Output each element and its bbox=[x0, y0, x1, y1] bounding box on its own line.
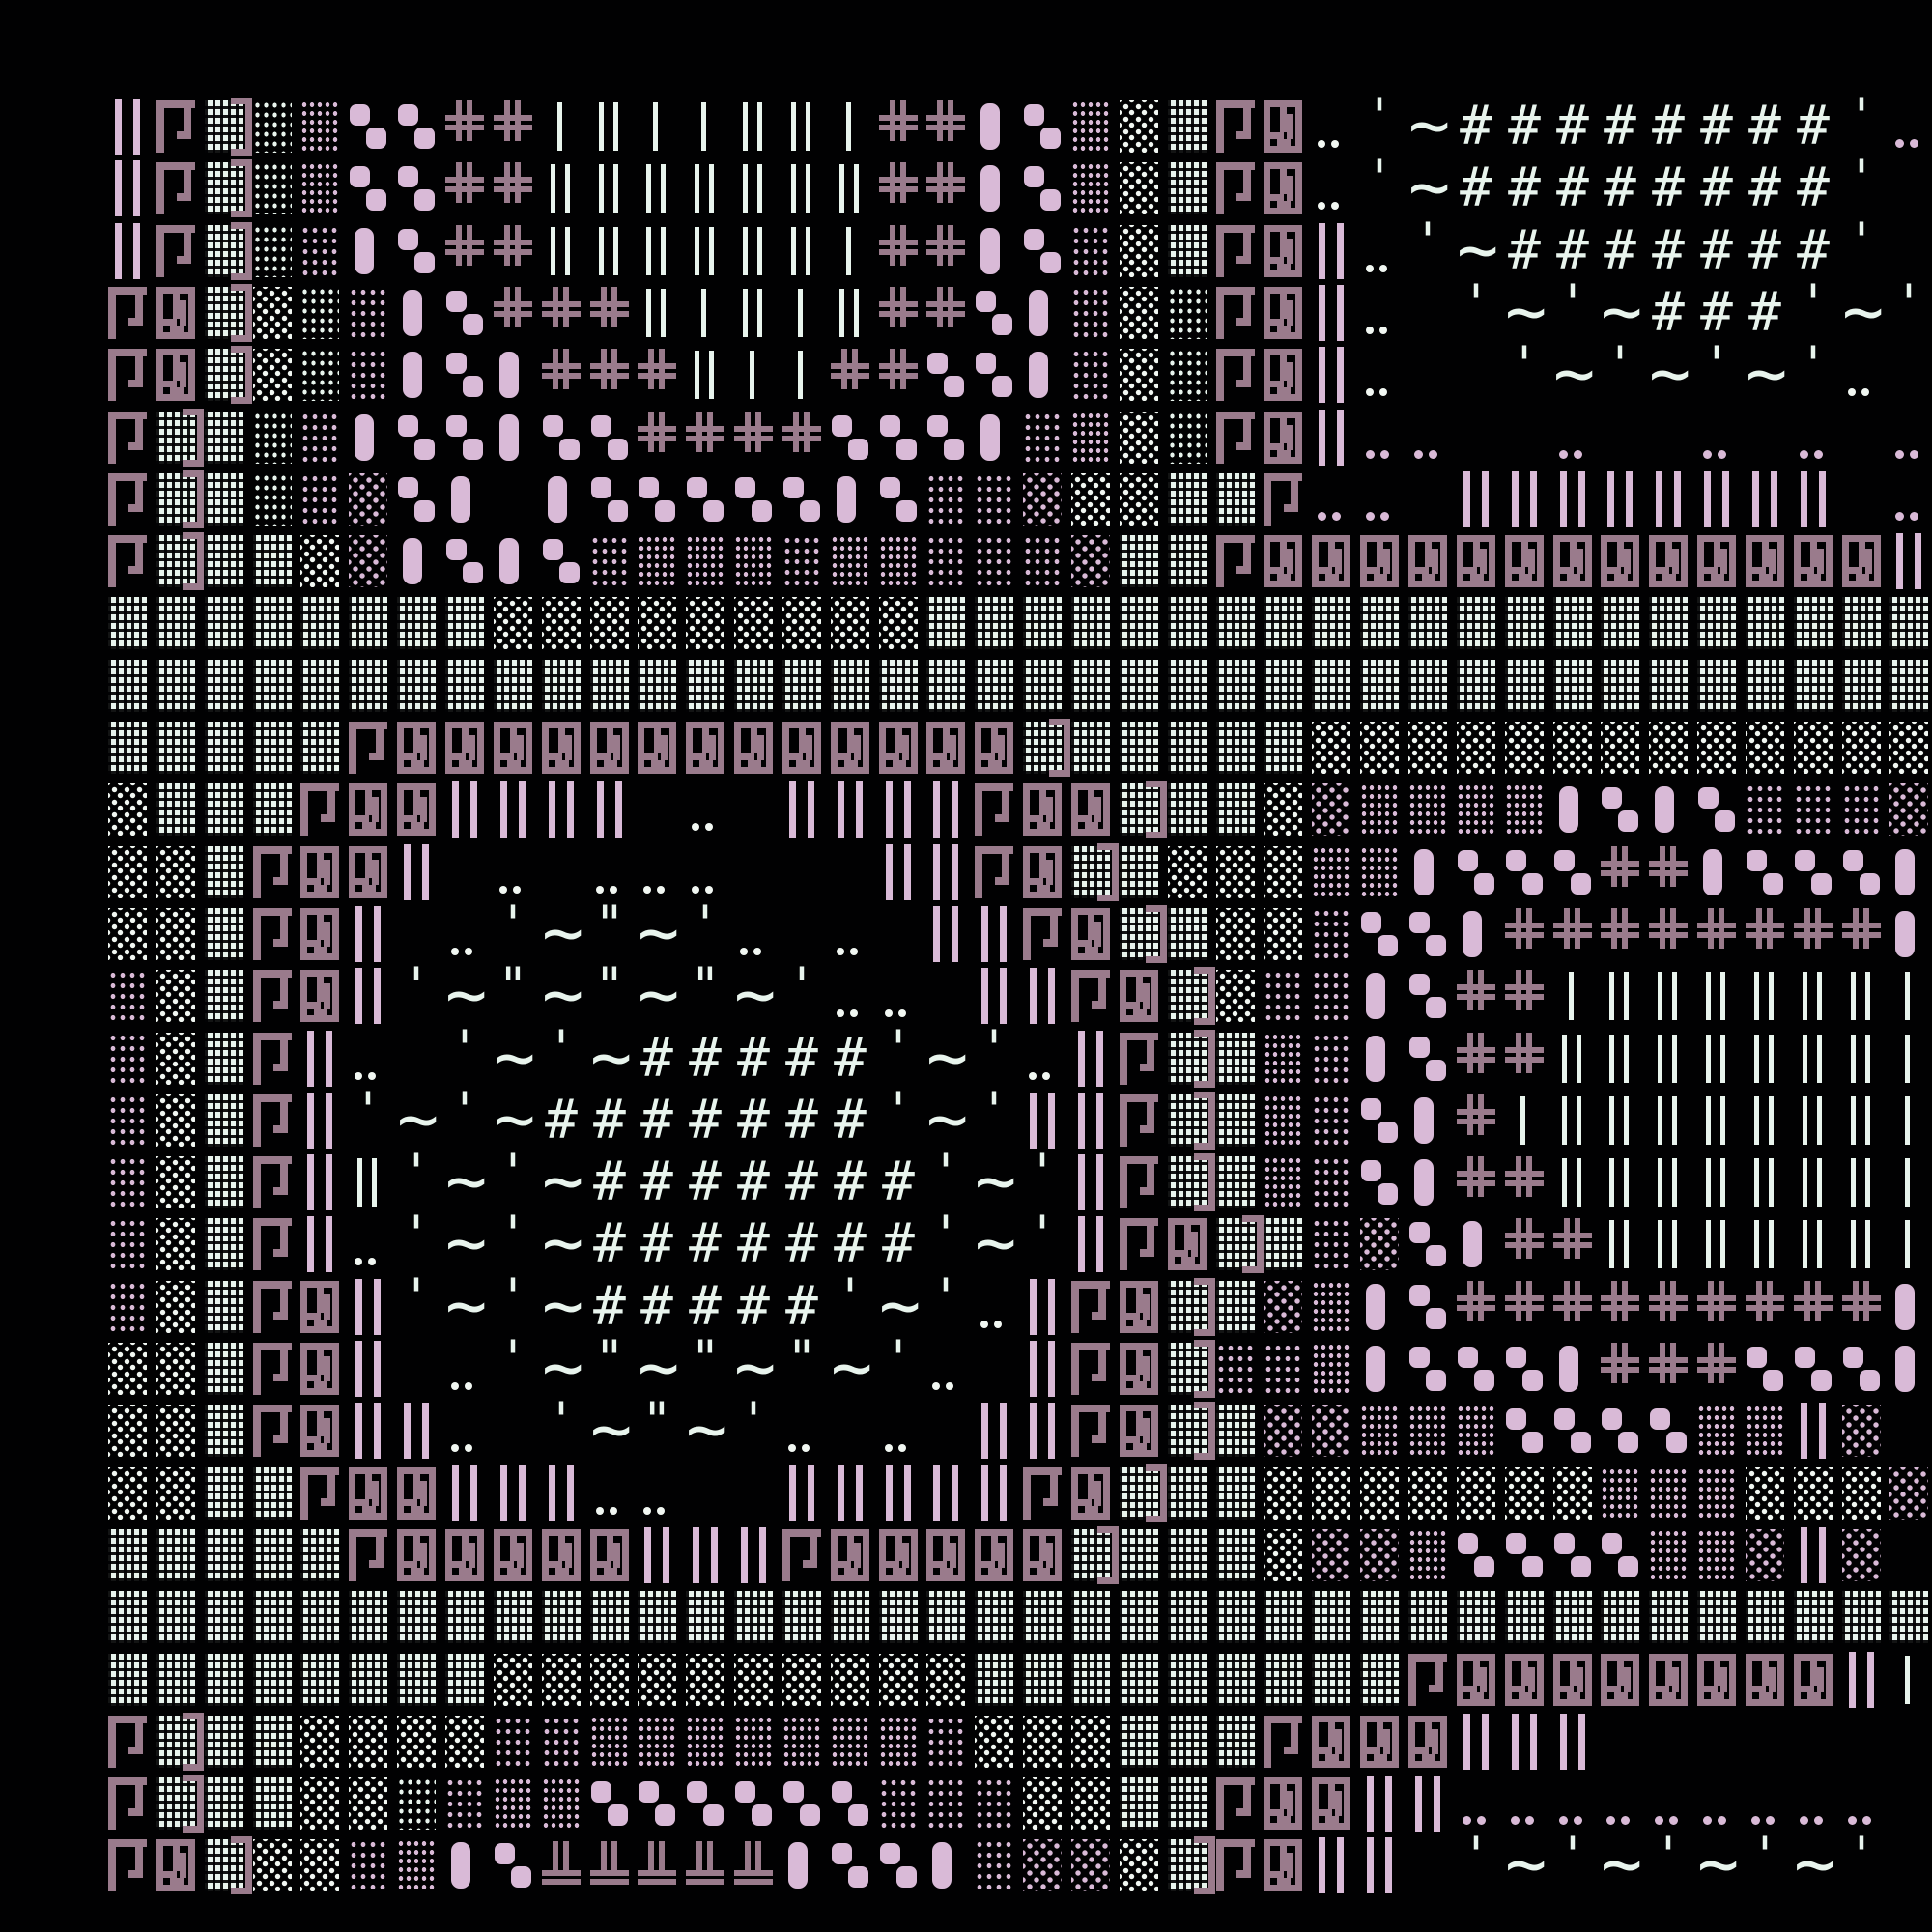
glyph-block-medium-pink bbox=[1312, 1156, 1350, 1208]
glyph-block-sparse-white bbox=[1120, 412, 1158, 464]
glyph-tilde: ~ bbox=[542, 1156, 581, 1208]
glyph-block-dense-white bbox=[1120, 1529, 1158, 1581]
glyph-gamma-maze-box bbox=[1360, 535, 1399, 587]
glyph-double-bar-pink bbox=[1794, 1405, 1833, 1457]
glyph-tilde: ~ bbox=[879, 1281, 918, 1333]
glyph-block-dense-pink bbox=[1649, 1529, 1688, 1581]
glyph-block-sparse-white bbox=[1649, 722, 1688, 774]
glyph-block-sparse-white bbox=[590, 1654, 629, 1706]
glyph-dot-pair-white bbox=[445, 908, 484, 960]
glyph-double-bar-white bbox=[1649, 1094, 1688, 1147]
glyph-gamma-maze-box bbox=[734, 722, 773, 774]
glyph-block-dense-white bbox=[205, 1467, 243, 1520]
glyph-hash: # bbox=[734, 1033, 773, 1085]
glyph-gamma-maze-box bbox=[156, 287, 195, 339]
glyph-double-bar-white bbox=[734, 225, 773, 277]
glyph-hash: # bbox=[831, 1094, 869, 1147]
glyph-block-dense-white bbox=[1794, 597, 1833, 649]
glyph-block-sparse-white bbox=[734, 1654, 773, 1706]
glyph-block-dense-white bbox=[1216, 597, 1255, 649]
glyph-double-bar-white bbox=[1649, 1218, 1688, 1270]
glyph-block-sparse-white bbox=[156, 1467, 195, 1520]
glyph-block-dense-white bbox=[975, 597, 1013, 649]
glyph-block-dense-white bbox=[349, 660, 387, 712]
glyph-apostrophe: ' bbox=[1649, 1839, 1688, 1891]
glyph-dot-pair-pink bbox=[1360, 412, 1399, 464]
glyph-double-bar-white bbox=[1746, 1033, 1784, 1085]
glyph-hash: # bbox=[831, 1156, 869, 1208]
glyph-double-bar-white bbox=[1553, 1094, 1592, 1147]
glyph-double-bar-pink bbox=[975, 1405, 1013, 1457]
glyph-gamma-maze-box bbox=[590, 1529, 629, 1581]
glyph-hash: # bbox=[1697, 287, 1736, 339]
glyph-pill-tall-pink bbox=[1408, 1094, 1447, 1147]
glyph-gamma-hook bbox=[1071, 1405, 1110, 1457]
glyph-pill-pair-pink bbox=[831, 412, 869, 464]
glyph-block-dense-white bbox=[1746, 597, 1784, 649]
glyph-gamma-maze-box bbox=[1168, 1218, 1207, 1270]
glyph-pill-pair-pink bbox=[1457, 1343, 1495, 1395]
glyph-gamma-maze-box bbox=[1312, 535, 1350, 587]
glyph-block-dense-white bbox=[205, 1156, 243, 1208]
page-body: { "title": "textmode-art", "palette": { … bbox=[0, 0, 1932, 1932]
glyph-block-sparse-white bbox=[1505, 1467, 1544, 1520]
glyph-block-sparse-white bbox=[1216, 846, 1255, 898]
glyph-pill-pair-pink bbox=[734, 1777, 773, 1830]
glyph-pill-tall-pink bbox=[1889, 1343, 1928, 1395]
glyph-block-sparse-white bbox=[1842, 722, 1881, 774]
glyph-pill-tall-pink bbox=[1457, 1218, 1495, 1270]
glyph-double-quote: " bbox=[638, 1405, 676, 1457]
glyph-block-sparse-pink bbox=[1264, 1281, 1302, 1333]
glyph-pill-tall-pink bbox=[1023, 287, 1062, 339]
glyph-pill-pair-pink bbox=[397, 473, 436, 526]
glyph-pill-pair-pink bbox=[590, 1777, 629, 1830]
glyph-gamma-maze-box bbox=[397, 783, 436, 836]
glyph-cross-double-mauve bbox=[1649, 908, 1688, 960]
glyph-tilde: ~ bbox=[445, 970, 484, 1022]
glyph-dot-pair-pink bbox=[1794, 1777, 1833, 1830]
glyph-block-dense-white bbox=[205, 1654, 243, 1706]
glyph-block-dense-white bbox=[205, 1094, 243, 1147]
glyph-dot-pair-white bbox=[349, 1033, 387, 1085]
glyph-tilde: ~ bbox=[1746, 349, 1784, 401]
glyph-gamma-maze-box bbox=[1264, 349, 1302, 401]
glyph-block-sparse-white bbox=[686, 1654, 724, 1706]
glyph-tilde: ~ bbox=[1505, 287, 1544, 339]
glyph-hash: # bbox=[734, 1281, 773, 1333]
glyph-pill-pair-pink bbox=[445, 412, 484, 464]
glyph-block-dense-white bbox=[205, 1033, 243, 1085]
glyph-gamma-maze-box bbox=[1120, 1405, 1158, 1457]
glyph-block-dense-pink bbox=[686, 535, 724, 587]
glyph-double-bar-white bbox=[734, 162, 773, 214]
glyph-block-dense-white bbox=[349, 1591, 387, 1643]
glyph-hash: # bbox=[1794, 100, 1833, 153]
glyph-single-bar-white bbox=[542, 100, 581, 153]
glyph-double-bar-white bbox=[1746, 1156, 1784, 1208]
glyph-block-sparse-pink bbox=[1264, 1405, 1302, 1457]
glyph-apostrophe: ' bbox=[879, 1094, 918, 1147]
glyph-double-bar-white bbox=[831, 287, 869, 339]
glyph-gamma-maze-box bbox=[1649, 535, 1688, 587]
glyph-cross-double-mauve bbox=[638, 412, 676, 464]
glyph-block-medium-pink bbox=[108, 1281, 147, 1333]
glyph-block-sparse-white bbox=[782, 1654, 821, 1706]
glyph-double-bar-white bbox=[1794, 1218, 1833, 1270]
glyph-block-dense-white bbox=[156, 1591, 195, 1643]
glyph-block-medium-pink bbox=[349, 287, 387, 339]
glyph-block-dense-pink bbox=[1264, 1094, 1302, 1147]
glyph-double-bar-white bbox=[638, 225, 676, 277]
glyph-dot-pair-pink bbox=[1553, 412, 1592, 464]
glyph-block-dense-white bbox=[686, 1591, 724, 1643]
glyph-pill-pair-pink bbox=[879, 1839, 918, 1891]
glyph-pill-pair-pink bbox=[1408, 908, 1447, 960]
glyph-block-sparse-white bbox=[156, 846, 195, 898]
glyph-block-dense-white bbox=[1889, 597, 1928, 649]
glyph-cross-double-mauve bbox=[1505, 1281, 1544, 1333]
glyph-block-dense-white bbox=[1216, 783, 1255, 836]
glyph-apostrophe: ' bbox=[686, 908, 724, 960]
glyph-hash: # bbox=[1601, 225, 1639, 277]
glyph-block-sparse-white bbox=[1120, 349, 1158, 401]
glyph-pill-pair-pink bbox=[1505, 846, 1544, 898]
glyph-gamma-maze-box bbox=[1264, 162, 1302, 214]
glyph-block-dense-pink bbox=[1649, 1467, 1688, 1520]
glyph-apostrophe: ' bbox=[1794, 349, 1833, 401]
glyph-block-dense-white bbox=[1457, 1591, 1495, 1643]
glyph-gamma-maze-box bbox=[1408, 1716, 1447, 1768]
glyph-block-dense-white bbox=[300, 597, 339, 649]
glyph-double-bar-white bbox=[542, 162, 581, 214]
textmode-art-canvas: '~########''~########''~#######''~'~###'… bbox=[0, 0, 1932, 1932]
glyph-pill-pair-pink bbox=[1408, 970, 1447, 1022]
glyph-dot-pair-white bbox=[590, 846, 629, 898]
glyph-tilde: ~ bbox=[542, 908, 581, 960]
glyph-block-medium-pink bbox=[349, 349, 387, 401]
glyph-gamma-maze-box bbox=[975, 1529, 1013, 1581]
glyph-cross-double-mauve bbox=[1457, 1156, 1495, 1208]
glyph-tilde: ~ bbox=[494, 1033, 532, 1085]
glyph-block-dense-white bbox=[445, 660, 484, 712]
glyph-block-dense-pink bbox=[831, 535, 869, 587]
glyph-double-bar-white bbox=[1746, 1094, 1784, 1147]
glyph-tilde: ~ bbox=[494, 1094, 532, 1147]
glyph-block-dense-pink bbox=[494, 1777, 532, 1830]
glyph-cross-double-mauve bbox=[734, 412, 773, 464]
glyph-pill-pair-pink bbox=[782, 473, 821, 526]
glyph-double-bar-white bbox=[686, 162, 724, 214]
glyph-block-dense-white bbox=[1216, 722, 1255, 774]
glyph-block-dense-white bbox=[205, 970, 243, 1022]
glyph-apostrophe: ' bbox=[734, 1405, 773, 1457]
glyph-dot-pair-white bbox=[494, 846, 532, 898]
glyph-block-dense-white bbox=[1601, 597, 1639, 649]
glyph-gamma-maze-box bbox=[782, 722, 821, 774]
glyph-block-sparse-pink bbox=[1312, 1405, 1350, 1457]
glyph-tilde: ~ bbox=[1697, 1839, 1736, 1891]
glyph-hash: # bbox=[782, 1281, 821, 1333]
glyph-block-medium-white bbox=[253, 412, 292, 464]
glyph-double-quote: " bbox=[494, 970, 532, 1022]
glyph-cross-bottom-mauve bbox=[734, 1839, 773, 1891]
glyph-block-dense-white bbox=[1168, 597, 1207, 649]
glyph-gamma-maze-box bbox=[1120, 1343, 1158, 1395]
glyph-single-bar-white bbox=[686, 287, 724, 339]
glyph-pill-tall-pink bbox=[445, 1839, 484, 1891]
glyph-gamma-maze-box bbox=[1649, 1654, 1688, 1706]
glyph-double-bar-pink bbox=[1794, 473, 1833, 526]
glyph-hash: # bbox=[638, 1281, 676, 1333]
glyph-block-dense-white bbox=[397, 660, 436, 712]
glyph-pill-pair-pink bbox=[638, 1777, 676, 1830]
glyph-hash: # bbox=[1601, 100, 1639, 153]
glyph-block-dense-white bbox=[1168, 783, 1207, 836]
glyph-pill-pair-pink bbox=[590, 473, 629, 526]
glyph-tilde: ~ bbox=[397, 1094, 436, 1147]
glyph-block-dense-white bbox=[253, 1529, 292, 1581]
glyph-block-dense-white bbox=[1505, 1591, 1544, 1643]
glyph-cross-bottom-mauve bbox=[638, 1839, 676, 1891]
glyph-cross-bottom-mauve bbox=[686, 1839, 724, 1891]
glyph-block-dense-pink bbox=[1312, 846, 1350, 898]
glyph-double-bar-pink bbox=[300, 1094, 339, 1147]
glyph-block-dense-white bbox=[1168, 1529, 1207, 1581]
glyph-cross-double-mauve bbox=[1697, 1281, 1736, 1333]
glyph-block-dense-pink bbox=[1071, 100, 1110, 153]
glyph-block-dense-white bbox=[205, 535, 243, 587]
glyph-apostrophe: ' bbox=[397, 1156, 436, 1208]
glyph-block-dense-white bbox=[686, 660, 724, 712]
glyph-gamma-maze-box bbox=[1264, 1777, 1302, 1830]
glyph-block-sparse-white bbox=[1120, 162, 1158, 214]
glyph-block-medium-pink bbox=[1071, 225, 1110, 277]
glyph-block-sparse-pink bbox=[1360, 1218, 1399, 1270]
glyph-block-sparse-white bbox=[1601, 722, 1639, 774]
glyph-block-sparse-white bbox=[1312, 1467, 1350, 1520]
glyph-block-dense-white-bracket bbox=[1071, 1529, 1110, 1581]
glyph-apostrophe: ' bbox=[879, 1033, 918, 1085]
glyph-cross-double-mauve bbox=[879, 100, 918, 153]
glyph-pill-tall-pink bbox=[1889, 1281, 1928, 1333]
glyph-pill-pair-pink bbox=[1023, 225, 1062, 277]
glyph-cross-double-mauve bbox=[1842, 908, 1881, 960]
glyph-double-bar-white bbox=[1794, 1033, 1833, 1085]
glyph-gamma-maze-box bbox=[445, 722, 484, 774]
glyph-block-sparse-white bbox=[1168, 846, 1207, 898]
glyph-cross-double-mauve bbox=[590, 349, 629, 401]
glyph-double-bar-white bbox=[1842, 970, 1881, 1022]
glyph-pill-tall-pink bbox=[397, 287, 436, 339]
glyph-tilde: ~ bbox=[542, 1281, 581, 1333]
glyph-block-dense-white bbox=[831, 1591, 869, 1643]
glyph-block-sparse-white bbox=[494, 1654, 532, 1706]
glyph-dot-pair-white bbox=[1023, 1033, 1062, 1085]
glyph-block-sparse-pink bbox=[1842, 1405, 1881, 1457]
glyph-dot-pair-white bbox=[686, 783, 724, 836]
glyph-gamma-hook bbox=[1216, 225, 1255, 277]
glyph-pill-tall-pink bbox=[1889, 908, 1928, 960]
glyph-block-dense-white bbox=[1216, 1094, 1255, 1147]
glyph-gamma-maze-box bbox=[1842, 535, 1881, 587]
glyph-hash: # bbox=[782, 1156, 821, 1208]
glyph-double-bar-pink bbox=[1071, 1218, 1110, 1270]
glyph-pill-pair-pink bbox=[494, 1839, 532, 1891]
glyph-block-sparse-white bbox=[1023, 1716, 1062, 1768]
glyph-tilde: ~ bbox=[1553, 349, 1592, 401]
glyph-double-quote: " bbox=[590, 1343, 629, 1395]
glyph-block-dense-white bbox=[638, 1591, 676, 1643]
glyph-pill-pair-pink bbox=[397, 225, 436, 277]
glyph-block-sparse-white bbox=[1408, 722, 1447, 774]
glyph-block-medium-pink bbox=[975, 1839, 1013, 1891]
glyph-gamma-maze-box bbox=[1505, 535, 1544, 587]
glyph-block-medium-white bbox=[253, 225, 292, 277]
glyph-block-dense-pink bbox=[879, 535, 918, 587]
glyph-block-dense-white-bracket bbox=[1168, 970, 1207, 1022]
glyph-gamma-maze-box bbox=[542, 1529, 581, 1581]
glyph-block-dense-pink bbox=[1312, 1281, 1350, 1333]
glyph-block-sparse-white bbox=[156, 908, 195, 960]
glyph-block-dense-white bbox=[1120, 1591, 1158, 1643]
glyph-dot-pair-pink bbox=[1649, 1777, 1688, 1830]
glyph-pill-tall-pink bbox=[397, 535, 436, 587]
glyph-single-bar-white bbox=[1889, 1033, 1928, 1085]
glyph-double-bar-white bbox=[1553, 1033, 1592, 1085]
glyph-block-dense-white bbox=[397, 597, 436, 649]
glyph-dot-pair-white bbox=[926, 1343, 965, 1395]
glyph-block-medium-white bbox=[1168, 287, 1207, 339]
glyph-block-dense-white bbox=[1168, 535, 1207, 587]
glyph-gamma-hook bbox=[108, 1716, 147, 1768]
glyph-block-medium-white bbox=[300, 287, 339, 339]
glyph-double-bar-pink bbox=[926, 1467, 965, 1520]
glyph-gamma-maze-box bbox=[879, 1529, 918, 1581]
glyph-pill-tall-pink bbox=[445, 473, 484, 526]
glyph-block-dense-white bbox=[1216, 1716, 1255, 1768]
glyph-pill-tall-pink bbox=[975, 162, 1013, 214]
glyph-double-bar-white bbox=[542, 225, 581, 277]
glyph-block-dense-pink bbox=[1312, 1343, 1350, 1395]
glyph-block-dense-white bbox=[1408, 1591, 1447, 1643]
glyph-double-bar-pink bbox=[1794, 1529, 1833, 1581]
glyph-pill-pair-pink bbox=[1408, 1343, 1447, 1395]
glyph-double-bar-pink bbox=[975, 1467, 1013, 1520]
glyph-dot-pair-white bbox=[879, 1405, 918, 1457]
glyph-block-sparse-white bbox=[253, 287, 292, 339]
glyph-block-dense-white bbox=[108, 660, 147, 712]
glyph-block-dense-white bbox=[205, 1716, 243, 1768]
glyph-double-bar-pink bbox=[638, 1529, 676, 1581]
glyph-gamma-maze-box bbox=[1457, 535, 1495, 587]
glyph-pill-pair-pink bbox=[1360, 908, 1399, 960]
glyph-block-dense-white bbox=[1023, 1654, 1062, 1706]
glyph-apostrophe: ' bbox=[1457, 1839, 1495, 1891]
glyph-block-dense-pink bbox=[1697, 1405, 1736, 1457]
glyph-dot-pair-white bbox=[1312, 162, 1350, 214]
glyph-pill-pair-pink bbox=[1842, 1343, 1881, 1395]
glyph-cross-double-mauve bbox=[638, 349, 676, 401]
glyph-double-bar-pink bbox=[1312, 287, 1350, 339]
glyph-cross-double-mauve bbox=[1553, 1218, 1592, 1270]
glyph-block-sparse-white bbox=[1264, 1529, 1302, 1581]
glyph-gamma-hook bbox=[349, 722, 387, 774]
glyph-gamma-maze-box bbox=[1264, 100, 1302, 153]
glyph-block-dense-white bbox=[1264, 722, 1302, 774]
glyph-dot-pair-white bbox=[782, 1405, 821, 1457]
glyph-block-dense-white bbox=[205, 846, 243, 898]
glyph-block-dense-white-bracket bbox=[205, 162, 243, 214]
glyph-dot-pair-white bbox=[445, 1343, 484, 1395]
glyph-double-bar-pink bbox=[542, 1467, 581, 1520]
glyph-block-sparse-white bbox=[879, 1654, 918, 1706]
glyph-double-bar-pink bbox=[1360, 1839, 1399, 1891]
glyph-double-bar-pink bbox=[1553, 473, 1592, 526]
glyph-block-medium-pink bbox=[1071, 349, 1110, 401]
glyph-apostrophe: ' bbox=[1601, 349, 1639, 401]
glyph-double-bar-pink bbox=[782, 1467, 821, 1520]
glyph-pill-pair-pink bbox=[1649, 1405, 1688, 1457]
glyph-apostrophe: ' bbox=[782, 970, 821, 1022]
glyph-block-dense-white-bracket bbox=[156, 1716, 195, 1768]
glyph-cross-double-mauve bbox=[926, 287, 965, 339]
glyph-gamma-maze-box bbox=[1264, 1839, 1302, 1891]
glyph-hash: # bbox=[686, 1218, 724, 1270]
glyph-gamma-hook bbox=[253, 846, 292, 898]
glyph-gamma-hook bbox=[108, 473, 147, 526]
glyph-cross-double-mauve bbox=[1601, 846, 1639, 898]
glyph-double-bar-white bbox=[1601, 970, 1639, 1022]
glyph-pill-pair-pink bbox=[975, 349, 1013, 401]
glyph-double-bar-pink bbox=[445, 783, 484, 836]
glyph-block-dense-white bbox=[1264, 1218, 1302, 1270]
glyph-block-dense-white bbox=[445, 1591, 484, 1643]
glyph-pill-pair-pink bbox=[1360, 1156, 1399, 1208]
glyph-double-bar-white bbox=[734, 100, 773, 153]
glyph-block-sparse-white bbox=[926, 1654, 965, 1706]
glyph-cross-double-mauve bbox=[879, 349, 918, 401]
glyph-pill-tall-pink bbox=[1457, 908, 1495, 960]
glyph-block-medium-pink bbox=[1842, 783, 1881, 836]
glyph-dot-pair-white bbox=[349, 1218, 387, 1270]
glyph-double-bar-white bbox=[638, 287, 676, 339]
glyph-block-dense-white bbox=[1168, 1591, 1207, 1643]
glyph-cross-double-mauve bbox=[1649, 846, 1688, 898]
glyph-block-sparse-white bbox=[108, 846, 147, 898]
glyph-pill-pair-pink bbox=[879, 412, 918, 464]
glyph-double-bar-pink bbox=[1457, 1716, 1495, 1768]
glyph-pill-tall-pink bbox=[349, 225, 387, 277]
glyph-block-sparse-white bbox=[1505, 722, 1544, 774]
glyph-double-bar-pink bbox=[1408, 1777, 1447, 1830]
glyph-pill-pair-pink bbox=[926, 412, 965, 464]
glyph-apostrophe: ' bbox=[397, 970, 436, 1022]
glyph-pill-pair-pink bbox=[397, 412, 436, 464]
glyph-double-bar-pink bbox=[1312, 1839, 1350, 1891]
glyph-apostrophe: ' bbox=[542, 1405, 581, 1457]
glyph-tilde: ~ bbox=[638, 1343, 676, 1395]
glyph-block-sparse-white bbox=[1360, 722, 1399, 774]
glyph-double-quote: " bbox=[782, 1343, 821, 1395]
glyph-block-sparse-white bbox=[1216, 908, 1255, 960]
glyph-tilde: ~ bbox=[590, 1405, 629, 1457]
glyph-double-bar-white bbox=[1746, 970, 1784, 1022]
glyph-gamma-maze-box bbox=[1553, 535, 1592, 587]
glyph-block-dense-pink bbox=[1360, 846, 1399, 898]
glyph-block-dense-pink bbox=[397, 1839, 436, 1891]
glyph-block-sparse-white bbox=[1889, 722, 1928, 774]
